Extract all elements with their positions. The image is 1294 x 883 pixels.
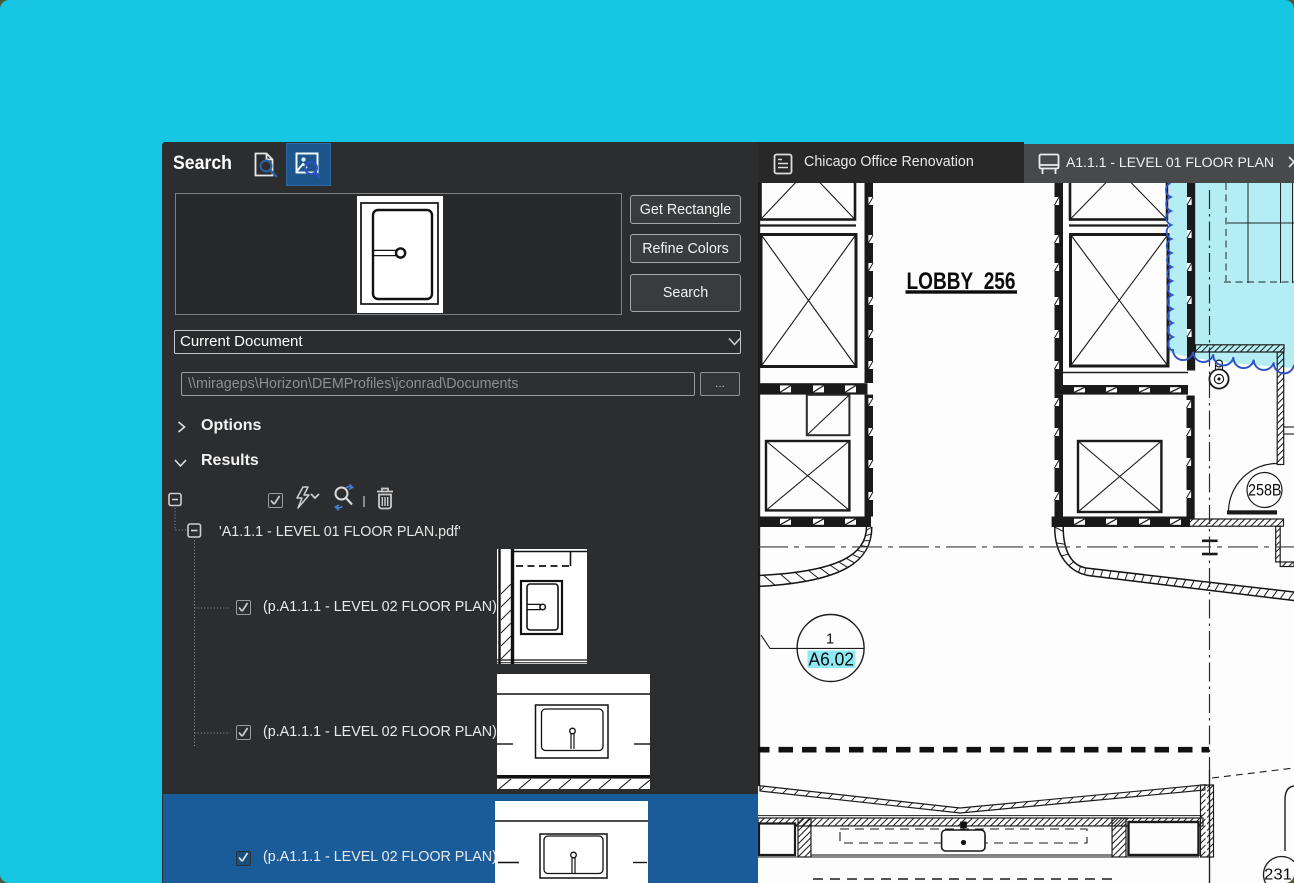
svg-text:A6.02: A6.02 [809, 650, 855, 670]
svg-text:1: 1 [826, 632, 834, 648]
svg-text:258B: 258B [1248, 482, 1282, 500]
svg-text:231: 231 [1264, 867, 1292, 883]
